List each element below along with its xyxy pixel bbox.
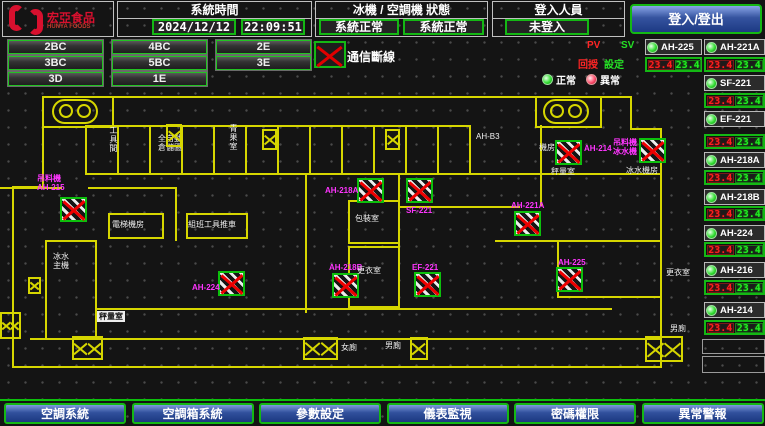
room-label: 青果室 (229, 124, 238, 151)
equipment-name: EF-221 (720, 114, 751, 125)
room-label: 秤量室 (97, 311, 125, 322)
pv-value: 23.4 (707, 173, 735, 183)
login-user-value: 未登入 (505, 19, 589, 35)
bottom-separator (0, 399, 765, 401)
wall-segment (535, 126, 602, 128)
floor-button-3bc[interactable]: 3BC (8, 56, 103, 70)
equipment-name: SF-221 (720, 78, 751, 89)
legend-abnormal-label: 異常 (600, 72, 620, 87)
sv-value: 23.4 (735, 60, 763, 70)
map-device-offline-icon[interactable] (406, 178, 433, 203)
floor-button-3e[interactable]: 3E (216, 56, 311, 70)
floor-button-5bc[interactable]: 5BC (112, 56, 207, 70)
floor-button-4bc[interactable]: 4BC (112, 40, 207, 54)
equipment-name: AH-221A (720, 42, 760, 53)
status-led-icon (706, 228, 717, 239)
equipment-values-ah-221a: 23.423.4 (704, 57, 765, 72)
legend-normal: 正常 (542, 72, 576, 87)
room-label: 更衣室 (666, 268, 690, 277)
sv-value: 23.4 (735, 283, 763, 293)
damper-x-cell (30, 279, 39, 292)
nav-button-4[interactable]: 儀表監視 (387, 403, 509, 424)
room-label: 工具間 (109, 126, 118, 153)
map-device-label: SF-221 (406, 206, 432, 215)
damper-x-icon (72, 336, 103, 360)
map-device-offline-icon[interactable] (556, 267, 583, 292)
map-device-label: AH-218A (325, 186, 358, 195)
wall-segment (341, 125, 343, 174)
logo-box: 宏亞食品 HUNYA FOODS (2, 1, 114, 37)
feedback-header: 回授 (578, 56, 598, 71)
wall-segment (213, 125, 215, 174)
room-label: 包裝室 (355, 214, 379, 223)
status-led-icon (706, 42, 717, 53)
equipment-name: AH-218A (720, 155, 760, 166)
status-led-icon (706, 265, 717, 276)
equipment-item-ah-218a[interactable]: AH-218A (704, 152, 765, 168)
wall-segment (30, 338, 662, 340)
room-label: 機房 (539, 143, 555, 152)
damper-x-cell (88, 338, 102, 358)
equipment-item-ah-225[interactable]: AH-225 (645, 39, 702, 55)
system-date-value: 2024/12/12 (152, 19, 236, 35)
equipment-name: AH-216 (720, 265, 753, 276)
brand-name-en: HUNYA FOODS (47, 24, 91, 30)
equipment-name: AH-218B (720, 192, 760, 203)
wall-segment (245, 125, 247, 174)
pv-value: 23.4 (707, 209, 735, 219)
normal-led-icon (542, 74, 553, 85)
comm-disconnect-label: 通信斷線 (347, 48, 395, 65)
ahu-status-value: 系統正常 (403, 19, 484, 35)
map-device-label: EF-221 (412, 263, 438, 272)
login-user-label: 登入人員 (493, 2, 624, 19)
damper-x-cell (412, 339, 426, 358)
comm-disconnect-icon (314, 41, 346, 68)
nav-button-6[interactable]: 異常警報 (642, 403, 764, 424)
equipment-values-ah-218a: 23.423.4 (704, 170, 765, 185)
equipment-item-ah-221a[interactable]: AH-221A (704, 39, 765, 55)
wall-segment (469, 125, 471, 174)
nav-button-2[interactable]: 空調箱系統 (132, 403, 254, 424)
empty-slot (702, 356, 765, 373)
map-device-offline-icon[interactable] (60, 197, 87, 222)
wall-segment (557, 296, 662, 298)
map-device-offline-icon[interactable] (218, 271, 245, 296)
equipment-values-sf-221: 23.423.4 (704, 93, 765, 108)
floor-button-1e[interactable]: 1E (112, 72, 207, 86)
wall-segment (42, 96, 632, 98)
room-label: 冰水機房 (626, 166, 658, 175)
damper-x-icon (645, 336, 683, 362)
map-device-label: 吊料機 冰水機 (613, 138, 637, 156)
map-device-label: AH-214 (584, 144, 612, 153)
equipment-values-ah-225: 23.423.4 (645, 57, 702, 72)
damper-x-cell (387, 131, 398, 148)
status-led-icon (706, 78, 717, 89)
map-device-label: AH-221A (511, 201, 544, 210)
equipment-item-ef-221[interactable]: EF-221 (704, 111, 765, 127)
sv-value: 23.4 (735, 245, 763, 255)
damper-x-icon (410, 337, 428, 360)
damper-x-icon (303, 337, 338, 360)
hunya-logo-icon (9, 5, 43, 37)
wall-segment (495, 240, 662, 242)
abnormal-led-icon (586, 74, 597, 85)
equipment-values-ah-218b: 23.423.4 (704, 206, 765, 221)
floor-button-2e[interactable]: 2E (216, 40, 311, 54)
nav-button-3[interactable]: 參數設定 (259, 403, 381, 424)
equipment-name: AH-214 (720, 305, 753, 316)
map-device-offline-icon[interactable] (639, 138, 666, 163)
status-led-icon (706, 305, 717, 316)
wall-segment (600, 96, 602, 128)
equipment-values-ah-224: 23.423.4 (704, 242, 765, 257)
wall-segment (437, 125, 439, 174)
wall-segment (12, 366, 662, 368)
damper-x-cell (74, 338, 88, 358)
empty-slot (702, 339, 765, 354)
room-label: 男廁 (385, 341, 401, 350)
equipment-values-ef-221: 23.423.4 (704, 134, 765, 149)
setting-header: 設定 (604, 56, 624, 71)
nav-button-1[interactable]: 空調系統 (4, 403, 126, 424)
damper-x-icon (0, 312, 21, 339)
room-label: 冰水 主機 (53, 252, 69, 270)
map-device-label: AH-224 (192, 283, 220, 292)
wall-segment (149, 125, 151, 174)
sv-value: 23.4 (735, 173, 763, 183)
room-label: AH-B3 (476, 132, 500, 141)
legend-normal-label: 正常 (556, 72, 576, 87)
pv-value: 23.4 (707, 60, 735, 70)
damper-x-icon (28, 277, 41, 294)
damper-x-cell (647, 338, 664, 360)
equipment-item-ah-214[interactable]: AH-214 (704, 302, 765, 318)
room-label: 組班工具推車 (188, 220, 236, 229)
damper-x-cell (2, 314, 11, 337)
stairwell-icon (52, 99, 98, 124)
floor-button-2bc[interactable]: 2BC (8, 40, 103, 54)
sv-value: 23.4 (735, 323, 763, 333)
equipment-name: AH-224 (720, 228, 753, 239)
wall-segment (373, 125, 375, 174)
damper-x-icon (166, 124, 182, 147)
map-device-offline-icon[interactable] (414, 272, 441, 297)
equipment-values-ah-216: 23.423.4 (704, 280, 765, 295)
nav-button-5[interactable]: 密碼權限 (514, 403, 636, 424)
sv-value: 23.4 (675, 60, 701, 70)
pv-value: 23.4 (707, 96, 735, 106)
room-label: 電梯機房 (112, 220, 144, 229)
equipment-item-ah-218b[interactable]: AH-218B (704, 189, 765, 205)
wall-segment (630, 128, 662, 130)
damper-x-icon (385, 129, 400, 150)
room-label: 男廁 (670, 324, 686, 333)
room-label: 秤量室 (551, 167, 575, 176)
damper-x-cell (168, 126, 180, 145)
sv-header: SV (621, 40, 634, 51)
damper-x-cell (264, 131, 275, 148)
sv-value: 23.4 (735, 209, 763, 219)
machine-status-label: 冰機 / 空調機 狀態 (316, 2, 487, 19)
wall-segment (12, 186, 14, 368)
damper-x-icon (262, 129, 277, 150)
stairwell-icon (543, 99, 589, 124)
wall-segment (85, 125, 87, 175)
damper-x-cell (664, 338, 681, 360)
damper-x-cell (305, 339, 321, 358)
status-led-icon (706, 114, 717, 125)
map-device-label: 吊料機 AH-215 (37, 174, 65, 192)
pv-value: 23.4 (648, 60, 674, 70)
sv-value: 23.4 (735, 96, 763, 106)
wall-segment (535, 96, 537, 128)
legend-abnormal: 異常 (586, 72, 620, 87)
wall-segment (405, 125, 407, 174)
wall-segment (630, 96, 632, 130)
wall-segment (88, 187, 176, 189)
system-time-label: 系統時間 (118, 2, 311, 19)
equipment-item-sf-221[interactable]: SF-221 (704, 75, 765, 91)
sv-value: 23.4 (735, 137, 763, 147)
wall-segment (112, 96, 114, 128)
room-label: 女廁 (341, 343, 357, 352)
wall-segment (305, 173, 307, 313)
pv-value: 23.4 (707, 137, 735, 147)
status-led-icon (647, 42, 658, 53)
map-device-label: AH-225 (558, 258, 586, 267)
login-logout-button[interactable]: 登入/登出 (630, 4, 762, 34)
pv-value: 23.4 (707, 283, 735, 293)
status-led-icon (706, 155, 717, 166)
equipment-item-ah-224[interactable]: AH-224 (704, 225, 765, 241)
wall-segment (175, 187, 177, 241)
wall-segment (660, 128, 662, 368)
floor-button-3d[interactable]: 3D (8, 72, 103, 86)
map-device-offline-icon[interactable] (357, 178, 384, 203)
room-label: 更衣室 (357, 266, 381, 275)
pv-header: PV (587, 40, 600, 51)
equipment-values-ah-214: 23.423.4 (704, 320, 765, 335)
status-led-icon (706, 192, 717, 203)
damper-x-cell (11, 314, 20, 337)
pv-value: 23.4 (707, 245, 735, 255)
map-device-offline-icon[interactable] (514, 211, 541, 236)
wall-segment (309, 125, 311, 174)
wall-segment (95, 308, 612, 310)
equipment-name: AH-225 (661, 42, 694, 53)
hmi-screen: { "header": { "brand": "宏亞食品", "brand_en… (0, 0, 765, 426)
system-clock-value: 22:09:51 (241, 19, 305, 35)
chiller-status-value: 系統正常 (319, 19, 399, 35)
damper-x-cell (321, 339, 337, 358)
wall-segment (277, 125, 279, 174)
equipment-item-ah-216[interactable]: AH-216 (704, 262, 765, 278)
map-device-offline-icon[interactable] (555, 140, 582, 165)
map-device-offline-icon[interactable] (332, 273, 359, 298)
pv-value: 23.4 (707, 323, 735, 333)
